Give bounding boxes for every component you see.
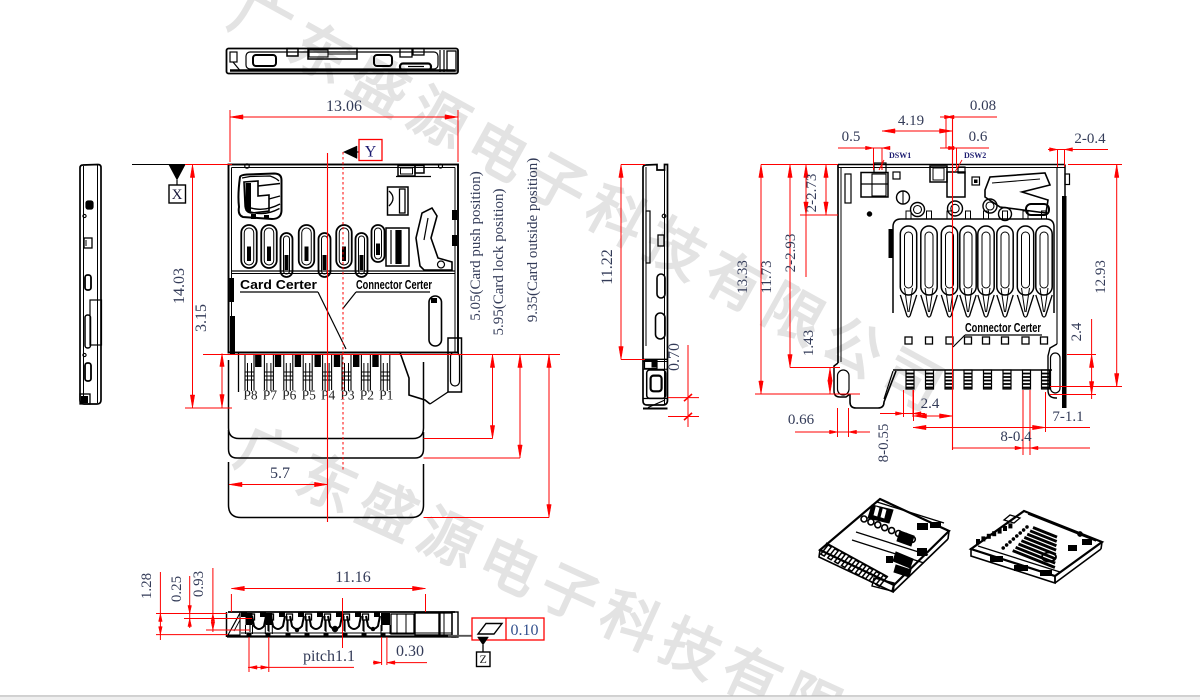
svg-text:0.93: 0.93 [191, 571, 207, 597]
svg-text:2-2.93: 2-2.93 [783, 234, 799, 273]
svg-text:Card Certer: Card Certer [240, 277, 317, 292]
svg-text:8-0.55: 8-0.55 [876, 424, 892, 463]
svg-text:5.7: 5.7 [270, 465, 290, 482]
svg-text:12.93: 12.93 [1093, 260, 1109, 294]
svg-text:0.30: 0.30 [396, 643, 424, 660]
svg-text:P2: P2 [360, 388, 374, 403]
svg-text:1.43: 1.43 [801, 330, 817, 356]
svg-text:7-1.1: 7-1.1 [1052, 409, 1083, 425]
svg-text:8-0.4: 8-0.4 [1000, 429, 1032, 445]
svg-text:5.05(Card push position): 5.05(Card push position) [468, 171, 484, 321]
svg-text:14.03: 14.03 [171, 268, 188, 304]
svg-text:0.10: 0.10 [511, 622, 539, 639]
svg-text:3.15: 3.15 [193, 304, 210, 332]
svg-text:5.95(Card lock position): 5.95(Card lock position) [491, 188, 507, 335]
svg-text:Y: Y [365, 144, 377, 161]
svg-text:11.73: 11.73 [759, 260, 775, 293]
svg-text:4.19: 4.19 [898, 113, 924, 129]
svg-text:X: X [172, 187, 183, 203]
svg-text:P1: P1 [379, 388, 393, 403]
svg-text:DSW2: DSW2 [964, 151, 986, 160]
svg-text:13.06: 13.06 [326, 98, 362, 115]
svg-text:Z: Z [480, 652, 487, 666]
svg-text:11.22: 11.22 [599, 249, 616, 284]
svg-text:Connector Certer: Connector Certer [356, 277, 432, 292]
svg-text:0.5: 0.5 [842, 129, 861, 145]
svg-text:0.6: 0.6 [969, 129, 988, 145]
svg-text:P7: P7 [263, 388, 278, 403]
svg-text:0.08: 0.08 [970, 98, 996, 114]
svg-text:0.70: 0.70 [666, 343, 683, 371]
svg-text:1.28: 1.28 [139, 573, 155, 599]
svg-text:pitch1.1: pitch1.1 [303, 648, 355, 665]
svg-text:0.25: 0.25 [169, 576, 185, 602]
svg-text:DSW1: DSW1 [889, 151, 911, 160]
svg-text:11.16: 11.16 [335, 569, 370, 586]
svg-text:0.66: 0.66 [788, 412, 815, 428]
svg-text:Connector Certer: Connector Certer [965, 320, 1041, 335]
svg-text:P8: P8 [243, 388, 258, 403]
svg-text:P4: P4 [321, 388, 336, 403]
svg-text:9.35(Card outside position): 9.35(Card outside position) [525, 158, 541, 323]
svg-text:13.33: 13.33 [735, 260, 751, 294]
svg-text:2.4: 2.4 [1069, 322, 1085, 341]
svg-text:P5: P5 [302, 388, 317, 403]
svg-text:2.4: 2.4 [921, 396, 940, 412]
svg-text:2-0.4: 2-0.4 [1074, 131, 1106, 147]
svg-text:P6: P6 [282, 388, 297, 403]
svg-text:P3: P3 [340, 388, 355, 403]
svg-text:2-2.73: 2-2.73 [804, 174, 820, 213]
